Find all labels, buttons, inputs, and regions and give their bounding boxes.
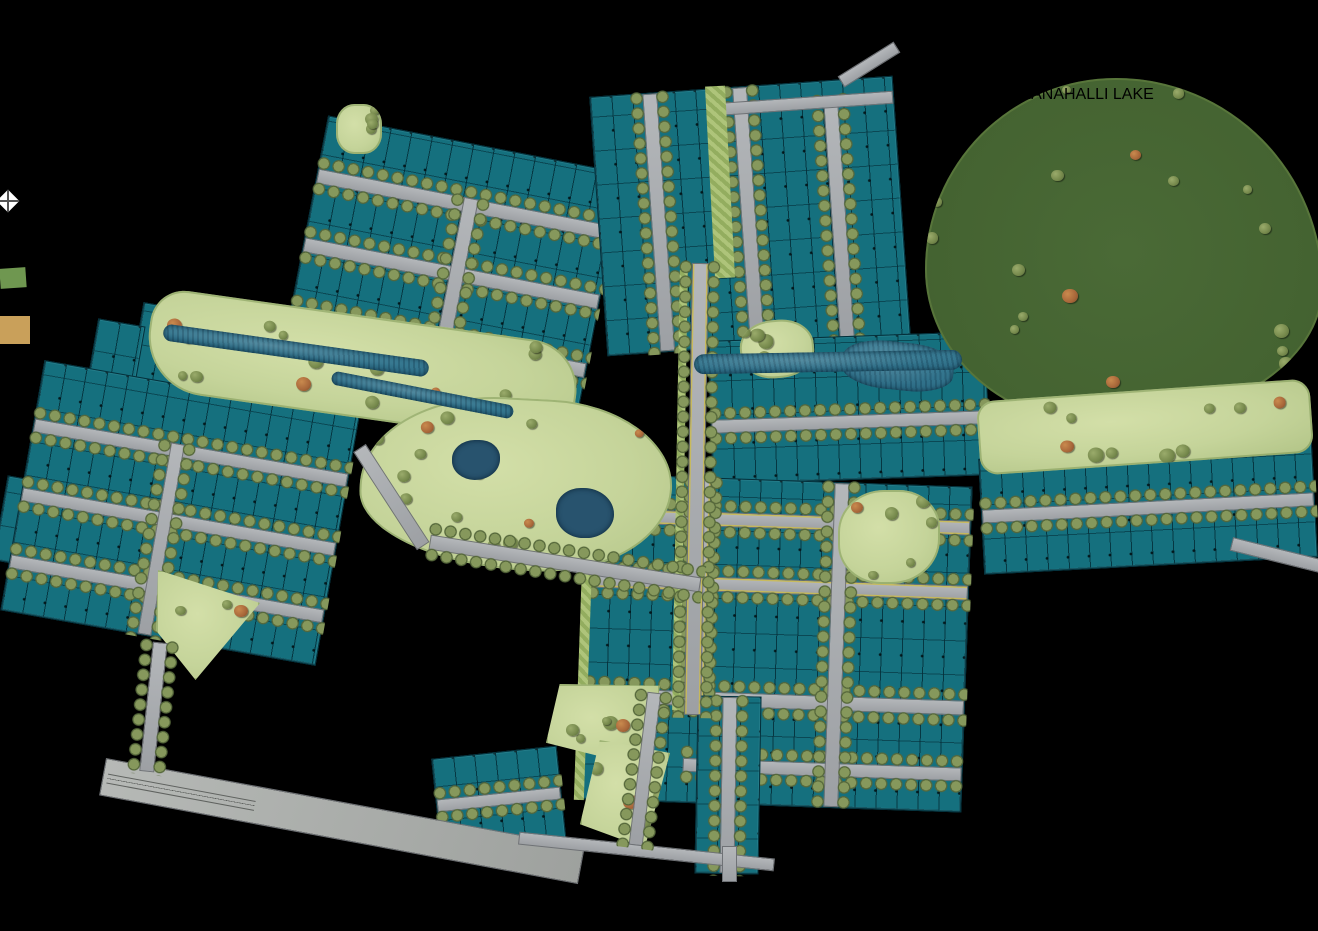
road [732, 87, 765, 345]
tree-icon [906, 558, 916, 567]
tree-icon [222, 600, 231, 609]
tree-icon [1060, 440, 1075, 454]
tree-icon [932, 197, 942, 206]
tree-icon [234, 605, 247, 617]
section-line-break [514, 893, 538, 910]
tree-icon [1204, 403, 1216, 414]
playground [0, 288, 30, 316]
road [711, 410, 987, 434]
clubhouse-c01-wing [0, 74, 67, 146]
plot-block-topcenter [589, 76, 910, 357]
tree-icon [1043, 401, 1057, 414]
tree-icon [526, 418, 537, 428]
park-34-36 [838, 490, 940, 584]
clubhouse-c02 [0, 146, 53, 171]
south-park-road [629, 692, 662, 847]
tree-icon [367, 119, 378, 129]
tree-icon [295, 376, 312, 392]
tree-icon [1066, 413, 1077, 423]
strip-stub-road [722, 846, 737, 882]
tree-icon [916, 495, 930, 508]
triangle-park-plaza [0, 316, 30, 344]
tree-icon [278, 330, 289, 340]
tree-icon [1175, 444, 1190, 458]
tree-icon [189, 370, 203, 383]
tree-icon [576, 734, 586, 743]
road [642, 93, 675, 351]
tree-icon [1234, 402, 1247, 414]
spiral-plaza [0, 209, 36, 243]
tree-icon [372, 433, 385, 445]
tree-icon [1279, 357, 1292, 369]
tree-icon [415, 449, 427, 460]
sports-court [0, 267, 27, 289]
tree-icon [926, 517, 938, 528]
section-line-break [462, 897, 486, 914]
site-master-plan: RAMANAYAKANAHALLI LAKE C - 01 C - 02 12. [0, 0, 1318, 931]
tree-icon [566, 724, 579, 736]
tree-icon [868, 571, 877, 579]
tree-icon [616, 719, 630, 732]
main-spine-road [684, 263, 709, 715]
tree-icon [1159, 448, 1175, 463]
tree-icon [263, 320, 276, 332]
tree-icon [1105, 447, 1118, 459]
tree-icon [420, 421, 434, 434]
pond-2 [556, 488, 614, 538]
tree-icon [851, 502, 863, 513]
tree-icon [397, 470, 410, 482]
park-38 [336, 104, 382, 154]
road [823, 96, 855, 339]
tree-icon [364, 395, 380, 410]
tree-icon [1087, 447, 1104, 463]
road [437, 787, 562, 813]
tree-icon [440, 411, 455, 425]
tree-icon [635, 429, 645, 438]
tree-icon [523, 518, 534, 528]
road [982, 492, 1314, 523]
tree-icon [177, 371, 188, 381]
tree-icon [451, 511, 463, 522]
tree-icon [175, 606, 186, 616]
tree-icon [1273, 396, 1287, 409]
entry-avenue [139, 642, 168, 773]
basketball-court [0, 242, 43, 270]
tree-icon [885, 507, 899, 520]
lake-label: RAMANAYAKANAHALLI LAKE [933, 86, 1315, 104]
